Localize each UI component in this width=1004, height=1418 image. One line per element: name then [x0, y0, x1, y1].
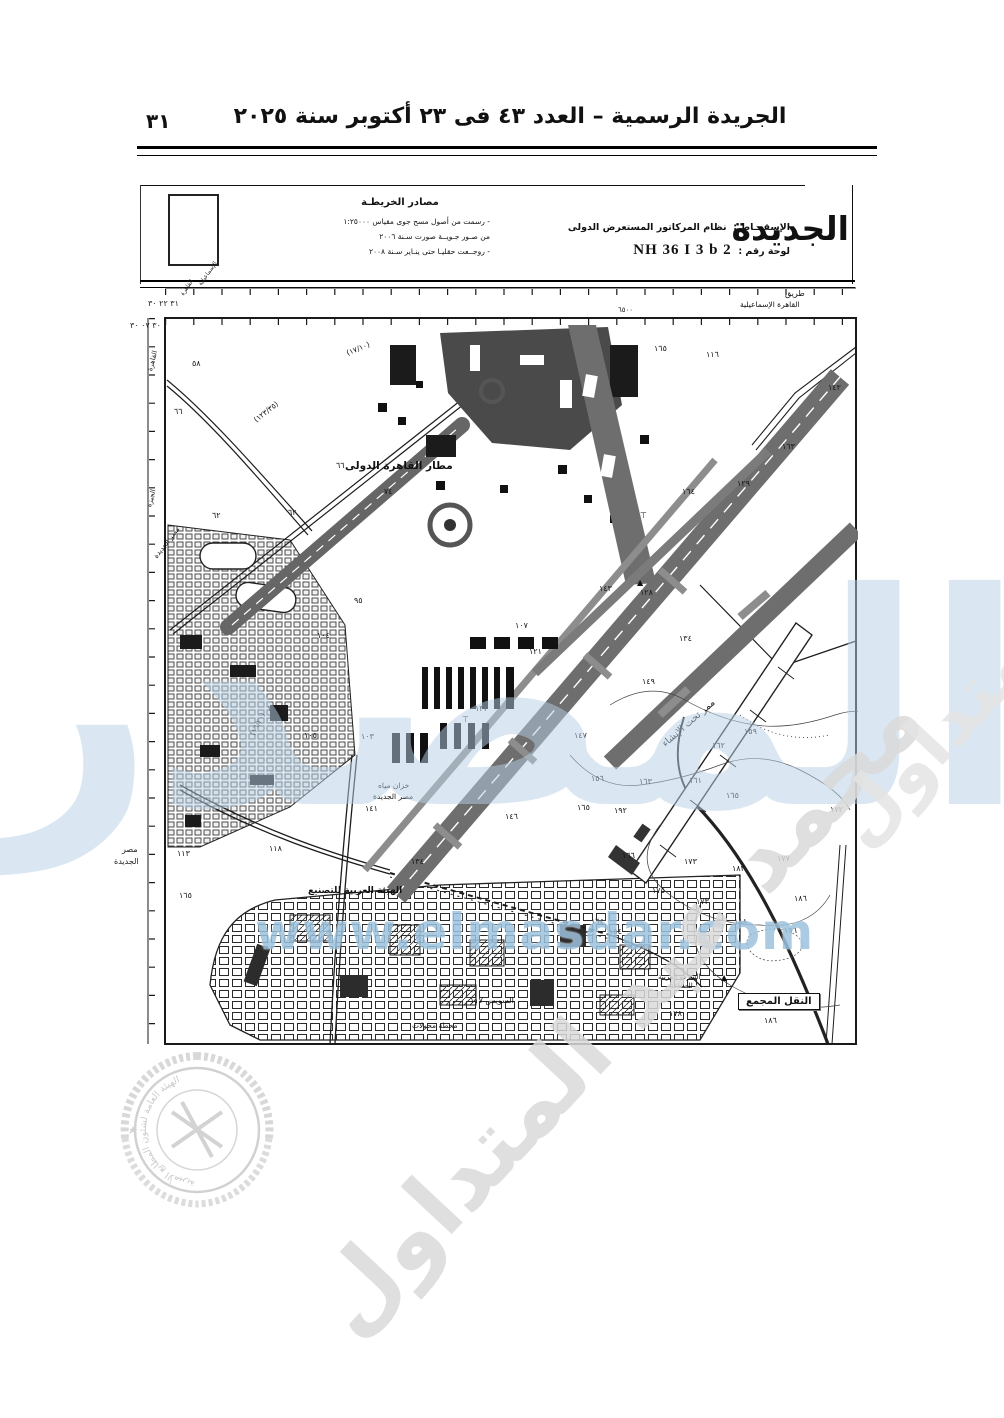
sheet-title-partial: الجديدة — [732, 209, 849, 248]
map-title-strip: مصادر الخريطـة - رسمت من أصول مسح جوى مق… — [140, 185, 855, 284]
projection-value: نظام المركاتور المستعرض الدولى — [568, 222, 727, 233]
header-rule — [137, 146, 877, 156]
seal-star-icon — [129, 1126, 138, 1134]
margin-label: ٣١ ٢٢ ٣٠ — [148, 299, 179, 308]
map-sources-heading: مصادر الخريطـة — [320, 197, 480, 208]
printing-house-seal: الهيئة العامة لشئون المطابع الأميرية — [92, 1042, 302, 1222]
sheet-number-value: NH 36 I 3 b 2 — [633, 242, 731, 258]
margin-label: الجديدة — [114, 857, 139, 866]
strip-top-border — [140, 185, 805, 186]
map-drawing — [140, 285, 858, 1048]
gazette-page: ٣١ الجريدة الرسمية – العدد ٤٣ فى ٢٣ أكتو… — [0, 0, 1004, 1418]
map-source-line: - روجــعت حقليـا حتى ينـاير سـنة ٢٠٠٨ — [295, 247, 490, 256]
map-source-line: من صـور جـويــة صورت سـنة ٢٠٠٦ — [295, 232, 490, 241]
strip-left-border — [140, 185, 141, 284]
strip-right-border — [852, 185, 853, 284]
page-title: الجريدة الرسمية – العدد ٤٣ فى ٢٣ أكتوبر … — [140, 104, 880, 129]
map-source-line: - رسمت من أصول مسح جوى مقياس ١:٢٥٠٠٠ — [295, 217, 490, 226]
margin-label: ٣٠ ٠٧ ٣٠ — [130, 321, 161, 330]
topographic-map: مطار القاهرة الدولىطريقالقاهرة الإسماعيل… — [140, 285, 858, 1048]
legend-box — [168, 194, 219, 266]
margin-label: مصر — [122, 845, 138, 854]
